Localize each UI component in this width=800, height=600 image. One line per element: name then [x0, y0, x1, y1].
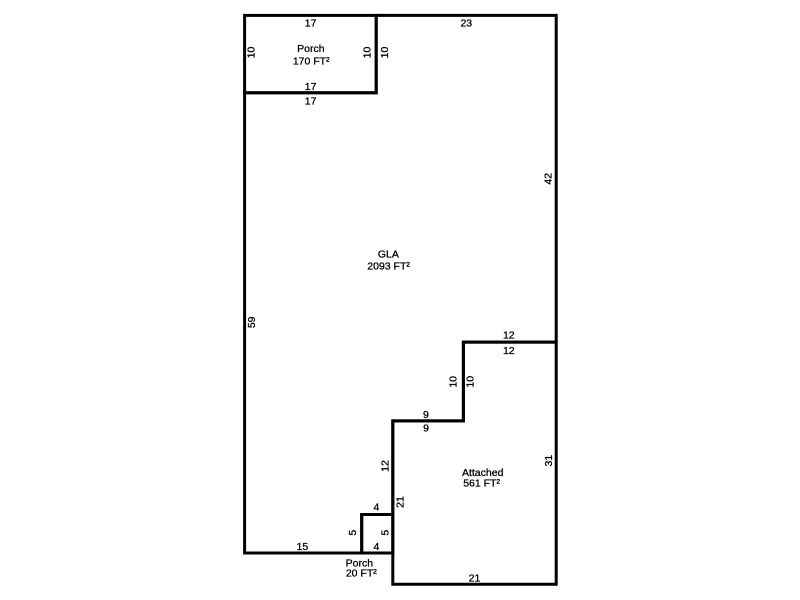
svg-text:GLA: GLA — [378, 249, 399, 261]
svg-text:21: 21 — [469, 573, 481, 585]
svg-text:21: 21 — [395, 496, 407, 508]
svg-text:5: 5 — [347, 530, 359, 536]
svg-text:9: 9 — [423, 409, 429, 421]
svg-text:5: 5 — [380, 530, 392, 536]
svg-text:17: 17 — [305, 96, 317, 108]
svg-text:Porch: Porch — [297, 43, 325, 55]
svg-text:17: 17 — [305, 81, 317, 93]
svg-text:12: 12 — [380, 460, 392, 472]
svg-text:31: 31 — [543, 455, 555, 467]
svg-text:15: 15 — [297, 541, 309, 553]
svg-text:10: 10 — [464, 376, 476, 388]
svg-text:10: 10 — [246, 47, 258, 59]
svg-text:561 FT²: 561 FT² — [463, 478, 500, 490]
svg-text:20 FT²: 20 FT² — [346, 567, 377, 579]
svg-text:170 FT²: 170 FT² — [293, 55, 330, 67]
svg-text:12: 12 — [503, 330, 515, 342]
svg-text:4: 4 — [373, 541, 379, 553]
svg-text:10: 10 — [362, 47, 374, 59]
svg-text:23: 23 — [460, 18, 472, 30]
svg-text:2093 FT²: 2093 FT² — [367, 261, 410, 273]
svg-text:17: 17 — [305, 18, 317, 30]
svg-text:10: 10 — [447, 376, 459, 388]
svg-text:4: 4 — [373, 502, 379, 514]
svg-text:59: 59 — [246, 316, 258, 328]
svg-text:42: 42 — [542, 173, 554, 185]
svg-text:9: 9 — [423, 423, 429, 435]
svg-text:10: 10 — [379, 47, 391, 59]
svg-text:12: 12 — [503, 345, 515, 357]
